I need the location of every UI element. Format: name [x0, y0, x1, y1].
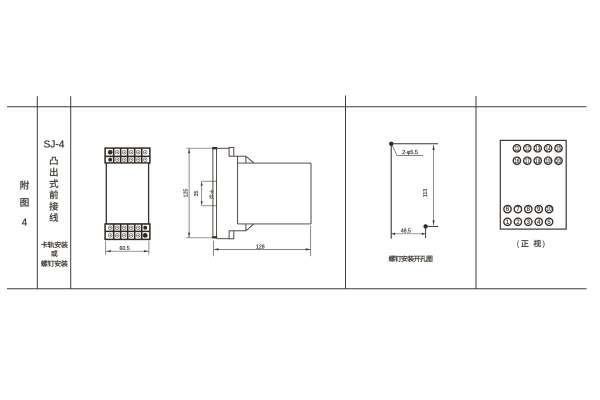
- svg-text:13: 13: [535, 146, 540, 152]
- svg-text:SJ-4: SJ-4: [44, 140, 65, 151]
- svg-text:14: 14: [546, 146, 551, 152]
- svg-text:48.5: 48.5: [401, 228, 411, 234]
- svg-text:4: 4: [22, 217, 28, 228]
- svg-text:125: 125: [184, 189, 190, 198]
- svg-text:): ): [542, 238, 545, 248]
- svg-text:20: 20: [556, 159, 561, 165]
- svg-text:15: 15: [556, 146, 561, 152]
- svg-text:17: 17: [525, 159, 530, 165]
- svg-text:2-φ5.5: 2-φ5.5: [402, 150, 418, 156]
- svg-text:(: (: [517, 238, 520, 248]
- svg-text:18: 18: [535, 159, 540, 165]
- svg-text:16: 16: [514, 159, 519, 165]
- svg-text:19: 19: [546, 159, 551, 165]
- svg-text:10: 10: [547, 207, 552, 213]
- svg-text:12: 12: [525, 146, 530, 152]
- svg-text:128: 128: [256, 244, 265, 250]
- svg-text:11: 11: [514, 146, 519, 152]
- svg-text:113: 113: [423, 189, 429, 197]
- svg-text:60.5: 60.5: [120, 246, 130, 252]
- svg-text:35: 35: [194, 191, 200, 197]
